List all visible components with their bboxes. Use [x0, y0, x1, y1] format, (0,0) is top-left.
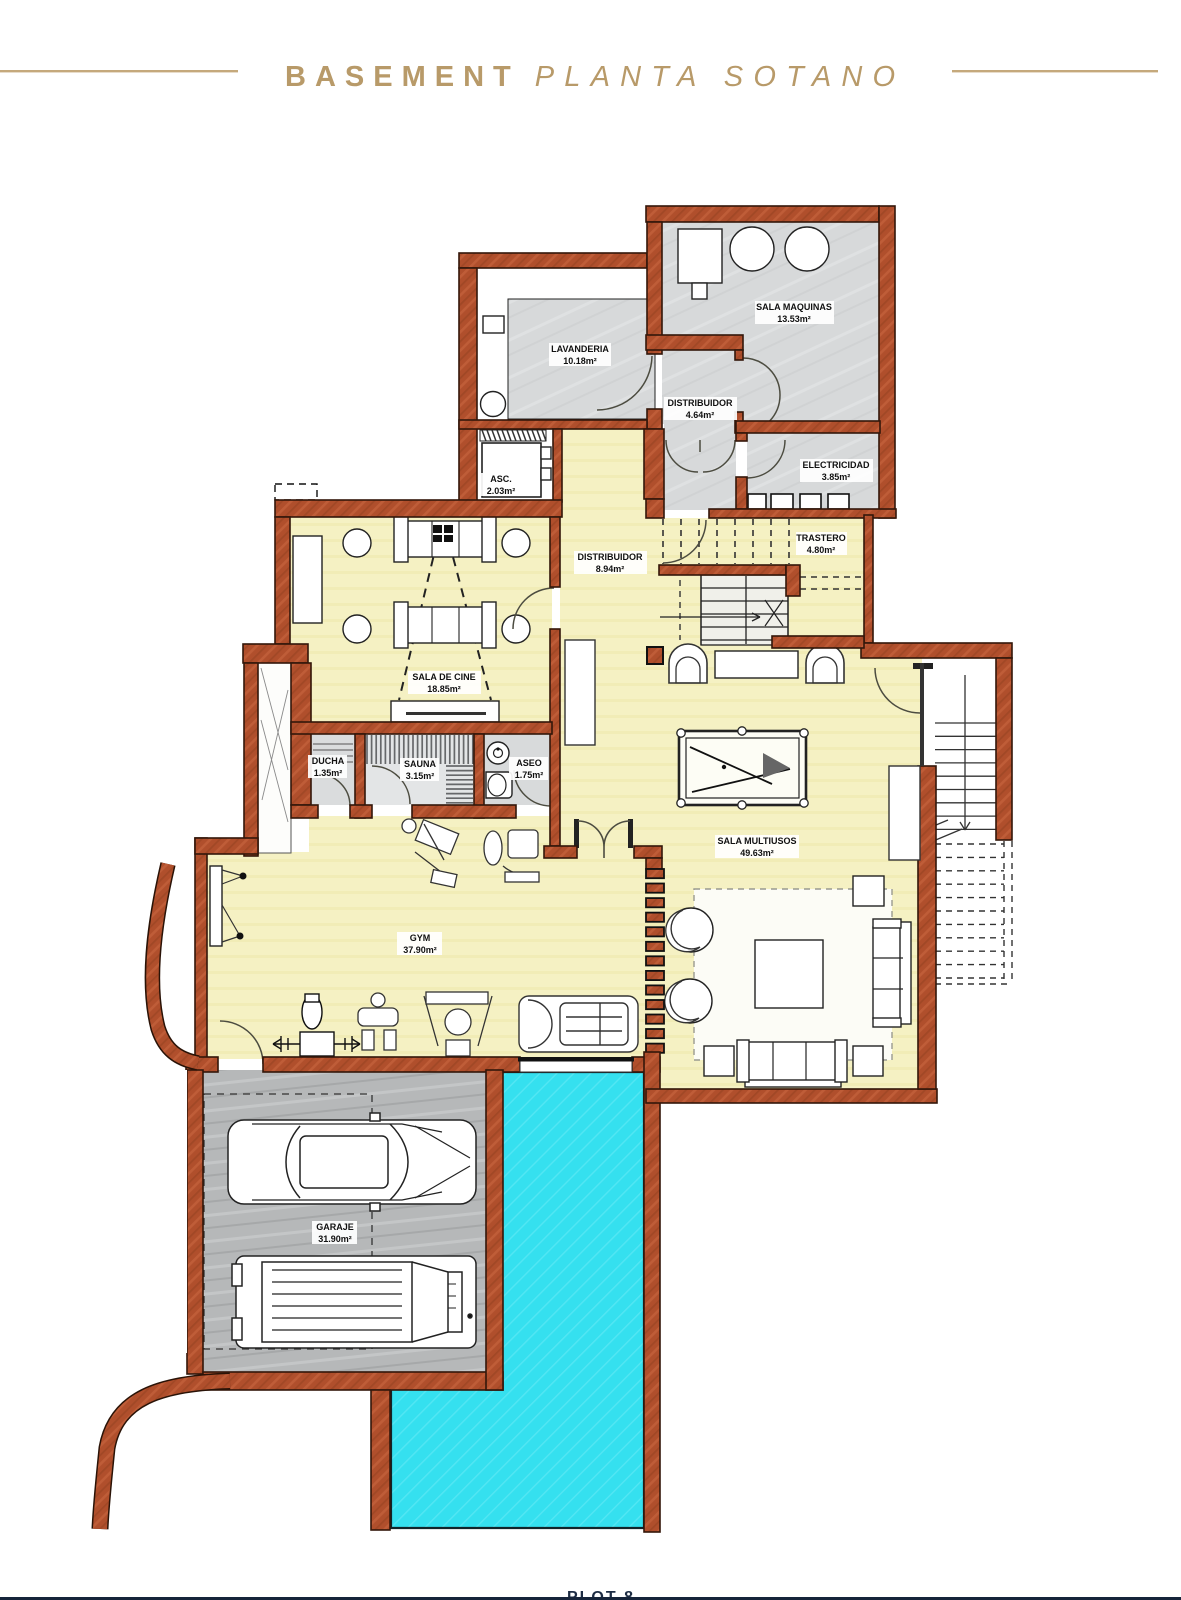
svg-text:3.15m²: 3.15m² [406, 771, 435, 781]
svg-text:13.53m²: 13.53m² [777, 314, 811, 324]
svg-text:37.90m²: 37.90m² [403, 945, 437, 955]
svg-text:DISTRIBUIDOR: DISTRIBUIDOR [578, 552, 644, 562]
svg-text:4.80m²: 4.80m² [807, 545, 836, 555]
svg-text:ASEO: ASEO [516, 758, 542, 768]
svg-text:BASEMENTPLANTA SOTANO: BASEMENTPLANTA SOTANO [285, 61, 905, 93]
svg-text:49.63m²: 49.63m² [740, 848, 774, 858]
svg-text:SALA MULTIUSOS: SALA MULTIUSOS [718, 836, 797, 846]
svg-text:18.85m²: 18.85m² [427, 684, 461, 694]
svg-text:3.85m²: 3.85m² [822, 472, 851, 482]
svg-text:8.94m²: 8.94m² [596, 564, 625, 574]
svg-text:SAUNA: SAUNA [404, 759, 437, 769]
svg-text:SALA DE CINE: SALA DE CINE [412, 672, 475, 682]
svg-text:ASC.: ASC. [490, 474, 512, 484]
svg-text:DUCHA: DUCHA [312, 756, 345, 766]
svg-text:2.03m²: 2.03m² [487, 486, 516, 496]
svg-text:4.64m²: 4.64m² [686, 410, 715, 420]
svg-text:ELECTRICIDAD: ELECTRICIDAD [803, 460, 870, 470]
svg-text:1.35m²: 1.35m² [314, 768, 343, 778]
svg-text:GYM: GYM [410, 933, 431, 943]
svg-text:TRASTERO: TRASTERO [796, 533, 846, 543]
svg-text:10.18m²: 10.18m² [563, 356, 597, 366]
svg-text:SALA MAQUINAS: SALA MAQUINAS [756, 302, 832, 312]
svg-text:LAVANDERIA: LAVANDERIA [551, 344, 609, 354]
svg-text:DISTRIBUIDOR: DISTRIBUIDOR [668, 398, 734, 408]
svg-text:31.90m²: 31.90m² [318, 1234, 352, 1244]
svg-text:GARAJE: GARAJE [316, 1222, 354, 1232]
svg-text:1.75m²: 1.75m² [515, 770, 544, 780]
